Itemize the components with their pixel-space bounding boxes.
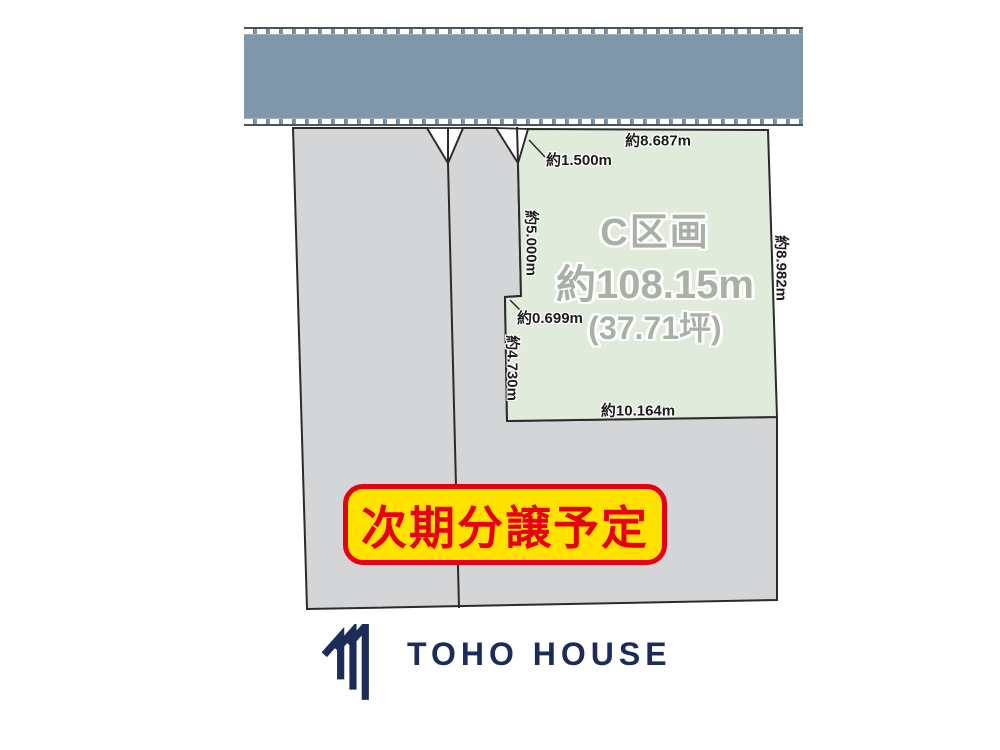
plot-area-tsubo: (37.71坪) [556,310,754,347]
dimension-corner-cut: 約1.500m [546,149,612,170]
next-phase-banner: 次期分譲予定 [343,484,667,565]
dimension-bottom-edge: 約10.164m [601,400,675,421]
land-plot-diagram: 約8.687m 約1.500m 約5.000m 約0.699m 約4.730m … [0,0,1000,750]
plot-c-label: C区画 約108.15m (37.71坪) [556,212,754,346]
plot-name: C区画 [556,212,754,256]
boundary-line [517,127,518,163]
dimension-right-edge: 約8.982m [772,235,793,301]
brand-name: TOHO HOUSE [407,636,672,673]
dimension-left-lower: 約4.730m [503,335,524,401]
plot-area-sqm: 約108.15m [556,262,754,308]
toho-house-logo-icon [322,624,386,704]
dimension-top-edge: 約8.687m [625,130,691,151]
dimension-left-upper: 約5.000m [522,210,543,276]
next-phase-banner-label: 次期分譲予定 [361,492,649,558]
